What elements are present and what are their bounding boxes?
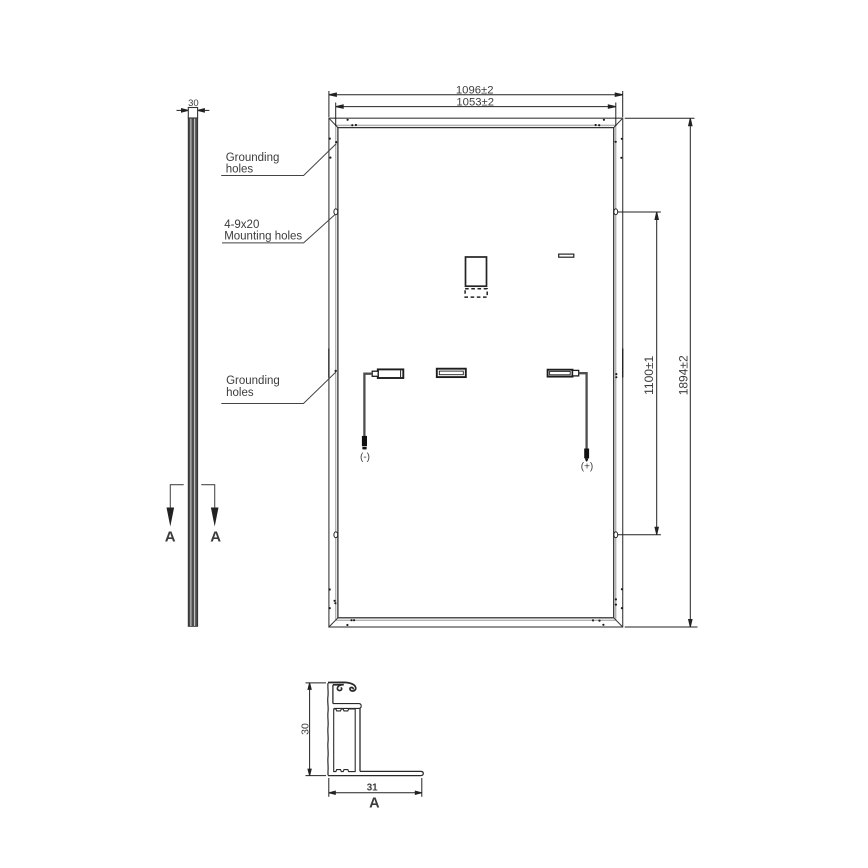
svg-text:A: A	[369, 796, 380, 812]
svg-text:Mounting holes: Mounting holes	[224, 231, 302, 243]
svg-text:(-): (-)	[360, 452, 370, 463]
svg-text:(+): (+)	[581, 462, 594, 473]
svg-text:30: 30	[300, 723, 312, 735]
svg-text:Grounding: Grounding	[226, 375, 280, 387]
svg-text:1100±1: 1100±1	[642, 355, 656, 394]
svg-text:A: A	[210, 529, 221, 546]
svg-text:4-9x20: 4-9x20	[224, 219, 259, 231]
svg-text:holes: holes	[226, 163, 254, 175]
svg-text:A: A	[165, 529, 176, 546]
svg-text:Grounding: Grounding	[226, 152, 280, 164]
svg-text:31: 31	[367, 782, 378, 793]
svg-text:holes: holes	[226, 387, 254, 399]
svg-text:1894±2: 1894±2	[676, 355, 690, 395]
